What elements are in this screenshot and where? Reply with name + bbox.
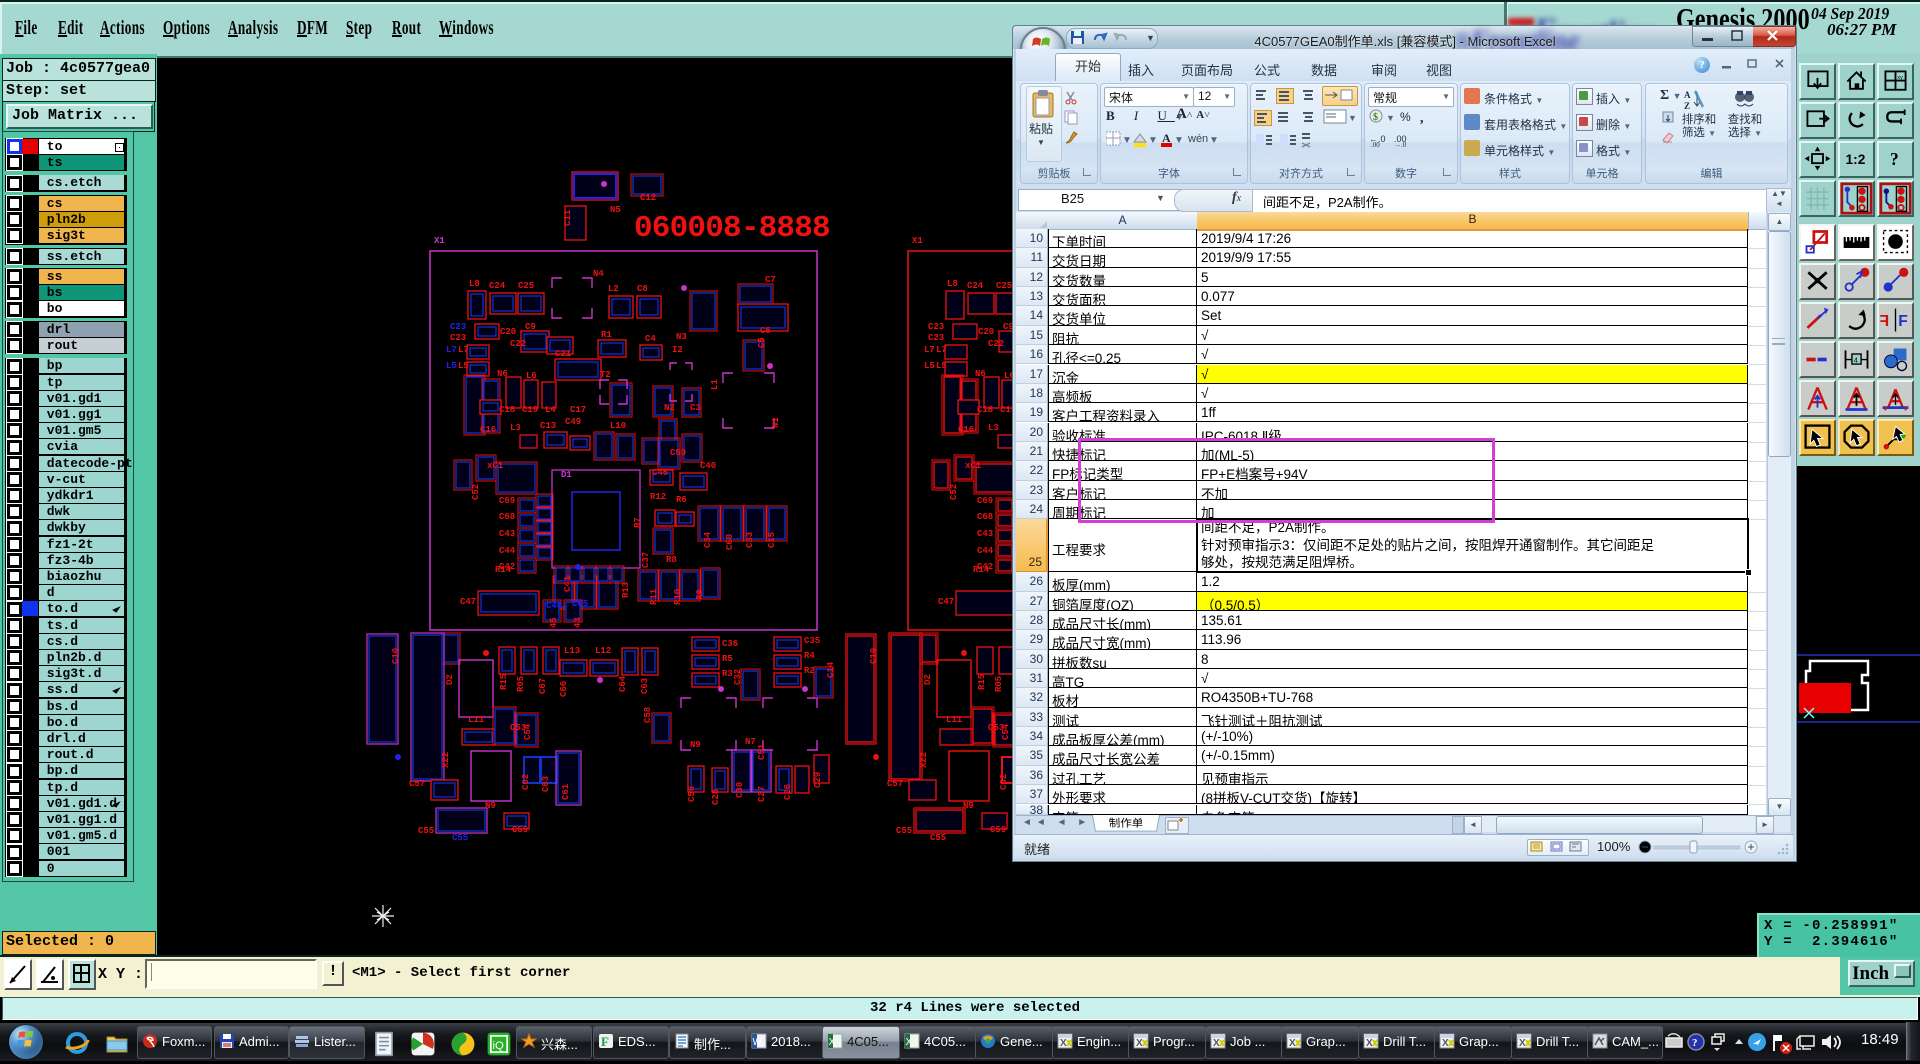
svg-text:A: A — [1162, 131, 1171, 145]
svg-text:C52: C52 — [471, 484, 481, 500]
svg-text:F: F — [1898, 313, 1908, 330]
svg-text:R9: R9 — [695, 589, 705, 600]
svg-text:C22: C22 — [510, 339, 526, 349]
svg-text:X1: X1 — [912, 236, 923, 246]
svg-text:▼: ▼ — [1209, 135, 1219, 146]
svg-text:C49: C49 — [565, 417, 581, 427]
svg-text:C10: C10 — [391, 648, 401, 664]
svg-text:▼: ▼ — [1386, 113, 1395, 123]
svg-text:T2: T2 — [600, 370, 611, 380]
svg-text:R15: R15 — [977, 674, 987, 690]
svg-text:,: , — [1420, 111, 1424, 126]
svg-text:$: $ — [1373, 112, 1378, 123]
svg-text:C60: C60 — [725, 534, 735, 550]
svg-text:C19: C19 — [522, 405, 538, 415]
svg-text:W: W — [753, 1037, 763, 1048]
svg-text:C69: C69 — [977, 496, 993, 506]
svg-text:C69: C69 — [499, 496, 515, 506]
svg-text:L13: L13 — [564, 646, 580, 656]
svg-text:C57: C57 — [887, 779, 903, 789]
svg-text:▼: ▼ — [1348, 113, 1356, 123]
svg-text:X: X — [1060, 1038, 1067, 1049]
svg-text:L5: L5 — [936, 361, 947, 371]
svg-text:C61: C61 — [561, 783, 571, 800]
svg-text:I2: I2 — [672, 345, 683, 355]
svg-text:X: X — [1136, 1038, 1143, 1049]
svg-text:C56: C56 — [687, 786, 697, 802]
svg-text:xC1: xC1 — [965, 461, 982, 471]
svg-text:xy: xy — [1897, 75, 1903, 81]
svg-text:R12: R12 — [650, 492, 666, 502]
svg-text:R14: R14 — [973, 565, 990, 575]
svg-text:C59: C59 — [990, 825, 1006, 835]
svg-text:L2: L2 — [608, 284, 619, 294]
svg-text:R14: R14 — [495, 565, 512, 575]
svg-text:C50: C50 — [670, 448, 686, 458]
svg-text:L3: L3 — [510, 423, 521, 433]
svg-text:R6: R6 — [676, 495, 687, 505]
svg-text:R3: R3 — [722, 669, 733, 679]
svg-text:D2: D2 — [445, 674, 455, 685]
svg-text:C55: C55 — [418, 826, 434, 836]
svg-text:C59: C59 — [512, 825, 528, 835]
svg-text:R11: R11 — [649, 588, 659, 605]
svg-text:C34: C34 — [703, 531, 713, 548]
svg-text:L5: L5 — [458, 361, 469, 371]
svg-text:C4: C4 — [645, 334, 656, 344]
svg-text:C41: C41 — [563, 575, 573, 592]
svg-text:C5: C5 — [757, 337, 767, 348]
svg-text:Z: Z — [1684, 101, 1690, 111]
svg-text:C52: C52 — [949, 484, 959, 500]
svg-text:C20: C20 — [500, 327, 516, 337]
svg-text:C65: C65 — [572, 599, 588, 609]
svg-text:C15: C15 — [767, 532, 777, 548]
svg-text:C62: C62 — [999, 774, 1009, 790]
svg-text:C26: C26 — [783, 784, 793, 800]
svg-text:C12: C12 — [640, 193, 656, 203]
svg-text:C33: C33 — [745, 532, 755, 548]
svg-text:R7: R7 — [633, 517, 643, 528]
svg-text:X: X — [829, 1037, 836, 1048]
svg-text:F: F — [601, 1034, 609, 1049]
svg-text:C16: C16 — [480, 425, 496, 435]
svg-text:C47: C47 — [460, 597, 476, 607]
svg-text:XZ2: XZ2 — [919, 752, 929, 768]
svg-text:C6: C6 — [760, 326, 771, 336]
svg-text:R13: R13 — [621, 582, 631, 598]
svg-text:C43: C43 — [977, 529, 993, 539]
svg-text:N7: N7 — [745, 737, 756, 747]
svg-text:C13: C13 — [540, 421, 556, 431]
svg-text:060008-8888: 060008-8888 — [634, 211, 830, 246]
svg-text:C64: C64 — [618, 675, 628, 692]
svg-text:L4: L4 — [545, 405, 556, 415]
svg-text:C18: C18 — [499, 405, 515, 415]
svg-text:C58: C58 — [643, 707, 653, 723]
svg-text:XZ2: XZ2 — [441, 752, 451, 768]
svg-text:N6: N6 — [975, 369, 986, 379]
svg-text:C66: C66 — [559, 681, 569, 697]
svg-text:C24: C24 — [489, 281, 506, 291]
svg-text:▼: ▼ — [1122, 135, 1132, 146]
svg-text:C16: C16 — [958, 425, 974, 435]
svg-text:?: ? — [1692, 1037, 1698, 1049]
svg-text:L7: L7 — [936, 345, 947, 355]
svg-text:N9: N9 — [485, 801, 496, 811]
svg-text:X: X — [1442, 1038, 1449, 1049]
svg-text:N3: N3 — [676, 332, 687, 342]
svg-text:C40: C40 — [700, 461, 716, 471]
svg-text:X1: X1 — [434, 236, 445, 246]
svg-text:R2: R2 — [804, 666, 815, 676]
svg-text:.00: .00 — [1371, 141, 1380, 148]
svg-text:L5: L5 — [924, 361, 935, 371]
svg-text:C55: C55 — [896, 826, 912, 836]
svg-text:R05: R05 — [994, 676, 1004, 692]
svg-text:C36: C36 — [722, 639, 738, 649]
svg-text:C17: C17 — [570, 405, 586, 415]
svg-text:N5: N5 — [610, 205, 621, 215]
svg-text:C29: C29 — [813, 772, 823, 788]
svg-text:L3: L3 — [988, 423, 999, 433]
svg-text:xC1: xC1 — [487, 461, 504, 471]
svg-text:N9: N9 — [963, 801, 974, 811]
svg-text:C23: C23 — [450, 333, 466, 343]
svg-text:R5: R5 — [722, 654, 733, 664]
svg-text:C21: C21 — [555, 349, 572, 359]
svg-text:wén: wén — [1187, 133, 1208, 145]
svg-text:C44: C44 — [499, 546, 516, 556]
svg-text:C32: C32 — [733, 669, 743, 685]
svg-text:C7: C7 — [765, 275, 776, 285]
svg-text:R8: R8 — [666, 555, 677, 565]
svg-text:R15: R15 — [499, 674, 509, 690]
svg-text:C24: C24 — [967, 281, 984, 291]
svg-text:L11: L11 — [946, 715, 963, 725]
svg-text:L7: L7 — [446, 345, 457, 355]
svg-text:L7: L7 — [924, 345, 935, 355]
svg-text:C68: C68 — [499, 512, 515, 522]
svg-text:C11: C11 — [563, 209, 573, 226]
svg-text:C14: C14 — [826, 661, 836, 678]
svg-text:C3: C3 — [690, 403, 701, 413]
svg-text:iQ: iQ — [493, 1040, 505, 1052]
svg-text:R1: R1 — [601, 330, 612, 340]
svg-text:C55: C55 — [452, 833, 468, 843]
svg-text:C63: C63 — [541, 776, 551, 792]
svg-text:▼: ▼ — [1174, 135, 1184, 146]
svg-text:C20: C20 — [978, 327, 994, 337]
svg-text:C51: C51 — [757, 743, 767, 760]
svg-text:N4: N4 — [593, 269, 604, 279]
svg-text:?: ? — [1890, 149, 1899, 169]
svg-text:C68: C68 — [977, 512, 993, 522]
svg-text:C62: C62 — [521, 774, 531, 790]
svg-text:R4: R4 — [804, 651, 815, 661]
svg-text:N6: N6 — [497, 369, 508, 379]
svg-text:L11: L11 — [468, 715, 485, 725]
svg-text:L1: L1 — [710, 379, 720, 390]
svg-text:L12: L12 — [595, 646, 611, 656]
svg-text:X: X — [1289, 1038, 1296, 1049]
svg-text:C9: C9 — [525, 322, 536, 332]
svg-text:C23: C23 — [928, 322, 944, 332]
svg-text:C22: C22 — [988, 339, 1004, 349]
svg-text:1:2: 1:2 — [1846, 152, 1866, 167]
svg-text:L7: L7 — [458, 345, 469, 355]
svg-text:C23: C23 — [450, 322, 466, 332]
svg-text:C67: C67 — [538, 678, 548, 694]
svg-text:45: 45 — [549, 617, 559, 628]
svg-text:C8: C8 — [637, 284, 648, 294]
svg-text:X: X — [1519, 1038, 1526, 1049]
svg-text:N9: N9 — [690, 740, 701, 750]
svg-text:R10: R10 — [673, 589, 683, 605]
svg-text:X: X — [906, 1037, 913, 1048]
svg-text:C55: C55 — [930, 833, 946, 843]
svg-text:%: % — [1400, 110, 1411, 124]
svg-text:C37: C37 — [641, 552, 651, 568]
svg-text:C44: C44 — [977, 546, 994, 556]
svg-text:F: F — [1880, 313, 1890, 330]
svg-text:R05: R05 — [516, 676, 526, 692]
svg-text:D1: D1 — [561, 470, 572, 480]
svg-text:X: X — [1366, 1038, 1373, 1049]
svg-text:C45: C45 — [652, 468, 668, 478]
svg-text:C54: C54 — [1001, 723, 1011, 740]
svg-text:L10: L10 — [610, 421, 626, 431]
svg-text:C28: C28 — [711, 789, 721, 805]
svg-text:L6: L6 — [526, 371, 537, 381]
svg-text:C54: C54 — [523, 723, 533, 740]
svg-text:C43: C43 — [499, 529, 515, 539]
svg-text:C35: C35 — [804, 636, 820, 646]
svg-text:N2: N2 — [664, 403, 675, 413]
svg-text:4: 4 — [1854, 355, 1858, 364]
svg-text:L8: L8 — [947, 279, 958, 289]
svg-text:X: X — [1213, 1038, 1220, 1049]
svg-text:L5: L5 — [446, 361, 457, 371]
svg-text:C30: C30 — [735, 782, 745, 798]
svg-text:C10: C10 — [869, 648, 879, 664]
svg-text:C63: C63 — [640, 678, 650, 694]
svg-text:C25: C25 — [518, 281, 534, 291]
svg-text:C27: C27 — [757, 786, 767, 802]
svg-text:L8: L8 — [469, 279, 480, 289]
svg-text:C18: C18 — [977, 405, 993, 415]
svg-text:D2: D2 — [923, 674, 933, 685]
svg-text:C57: C57 — [409, 779, 425, 789]
svg-text:C25: C25 — [996, 281, 1012, 291]
svg-text:N1: N1 — [771, 417, 781, 428]
svg-text:→.0: →.0 — [1394, 141, 1407, 148]
svg-text:▼: ▼ — [1148, 135, 1158, 146]
svg-text:C48: C48 — [546, 601, 562, 611]
svg-text:C47: C47 — [938, 597, 954, 607]
svg-text:C23: C23 — [928, 333, 944, 343]
svg-text:43: 43 — [573, 617, 583, 628]
svg-text:A: A — [1684, 90, 1691, 100]
